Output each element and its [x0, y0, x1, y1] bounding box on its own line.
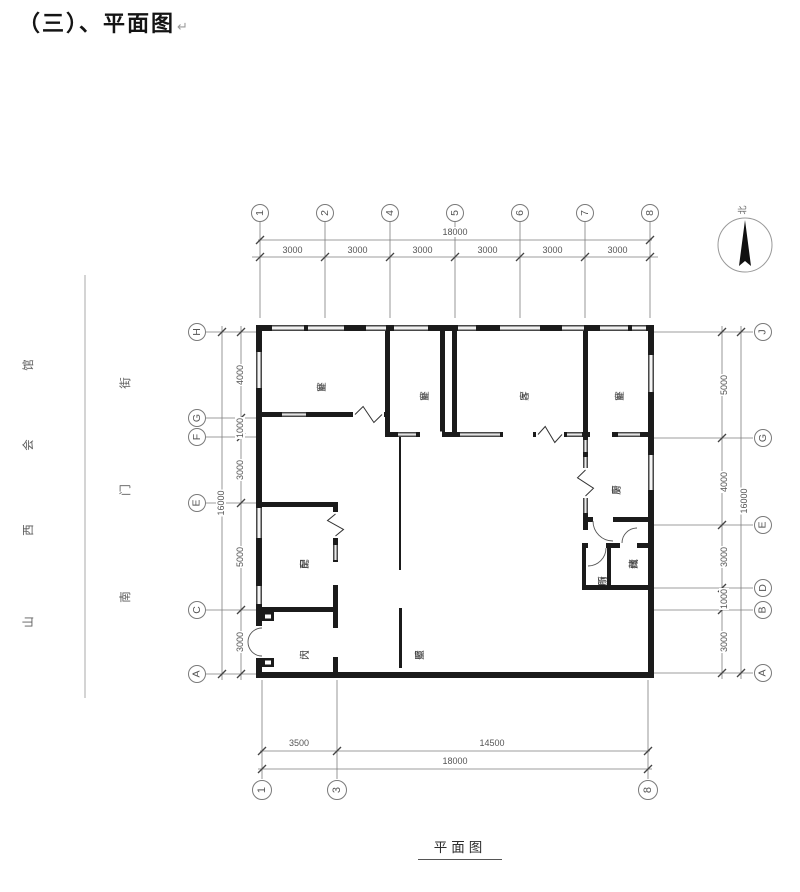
room-label-char: 壁 [412, 650, 426, 660]
grid-bubble-bottom-3-label: 3 [331, 787, 343, 793]
room-label-char: 房 [297, 559, 311, 569]
room-label-char: 室 [612, 391, 626, 401]
boundary-label-inner-char: 南 [117, 591, 133, 603]
grid-bubble-right-J-label: J [757, 329, 769, 334]
toilet-door-arc [588, 548, 606, 566]
grid-bubble-right-J: J [754, 323, 772, 341]
dim-left-segment: 5000 [235, 545, 245, 567]
dim-left-segment: 1000 [235, 416, 245, 438]
door-opening [588, 543, 606, 549]
partition-wall [440, 331, 445, 437]
gate-pier [265, 661, 271, 665]
grid-bubble-right-B: B [754, 601, 772, 619]
boundary-label-inner-char: 街 [117, 377, 133, 389]
grid-bubble-bottom-1: 1 [252, 780, 272, 800]
grid-bubble-top-8: 8 [641, 204, 659, 222]
gate-vestibule-east-wall [333, 657, 338, 673]
floor-plan-page: （三）、平面图↵ 1245678HGFECAJGEDBA138180003000… [0, 0, 800, 892]
grid-bubble-top-4-label: 4 [384, 210, 396, 216]
kitchen-wall-stub [583, 517, 588, 530]
side-room-south-wall [256, 607, 338, 612]
grid-bubble-top-6: 6 [511, 204, 529, 222]
grid-bubble-right-E: E [754, 516, 772, 534]
grid-bubble-left-G: G [188, 409, 206, 427]
dim-left-segment: 3000 [235, 459, 245, 481]
dim-right-overall: 16000 [739, 487, 749, 514]
partition-wall [385, 331, 390, 437]
grid-bubble-left-H: H [188, 323, 206, 341]
door-opening [420, 432, 442, 439]
grid-bubble-left-H-label: H [191, 328, 203, 336]
dim-top-segment: 3000 [281, 245, 303, 255]
boundary-label-outer-char: 山 [20, 616, 36, 628]
door-opening [593, 517, 613, 523]
dim-right-segment: 4000 [719, 470, 729, 492]
room-label-char: 厅 [517, 391, 531, 401]
dim-left-segment: 4000 [235, 364, 245, 386]
grid-bubble-top-1-label: 1 [254, 210, 266, 216]
room-label-char: 门 [297, 650, 311, 660]
grid-bubble-left-F-label: F [191, 434, 203, 440]
dim-left-segment: 3000 [235, 631, 245, 653]
compass-north-needle [739, 220, 751, 266]
toilet-storage-south-wall [582, 585, 648, 590]
partition-wall [583, 331, 588, 437]
dim-bottom-segment: 3500 [288, 738, 310, 748]
grid-bubble-left-E-label: E [191, 499, 203, 506]
grid-bubble-left-G-label: G [191, 414, 203, 422]
dim-right-segment: 3000 [719, 630, 729, 652]
dim-right-segment: 1000 [719, 588, 729, 610]
grid-bubble-right-G: G [754, 429, 772, 447]
grid-bubble-top-5: 5 [446, 204, 464, 222]
grid-bubble-left-C: C [188, 601, 206, 619]
dim-top-segment: 3000 [476, 245, 498, 255]
grid-bubble-top-6-label: 6 [514, 210, 526, 216]
grid-bubble-right-B-label: B [757, 606, 769, 613]
grid-bubble-right-A-label: A [757, 669, 769, 676]
dim-top-segment: 3000 [411, 245, 433, 255]
dim-bottom-overall: 18000 [441, 756, 468, 766]
courtyard-screen-wall [399, 437, 401, 570]
drawing-caption: 平面图 [418, 836, 502, 860]
door-opening [590, 432, 612, 439]
grid-bubble-bottom-1-label: 1 [256, 787, 268, 793]
grid-bubble-bottom-3: 3 [327, 780, 347, 800]
screen-wall-zhaobi [399, 608, 402, 668]
grid-bubble-left-E: E [188, 494, 206, 512]
dim-top-segment: 3000 [541, 245, 563, 255]
gate-vestibule-east-wall [333, 612, 338, 628]
grid-bubble-top-2-label: 2 [319, 210, 331, 216]
grid-bubble-top-7: 7 [576, 204, 594, 222]
grid-bubble-right-G-label: G [757, 434, 769, 442]
grid-bubble-top-4: 4 [381, 204, 399, 222]
room-label-char: 房 [609, 485, 623, 495]
grid-bubble-top-5-label: 5 [449, 210, 461, 216]
floor-plan-drawing [0, 0, 800, 892]
room-label-char: 所 [595, 576, 609, 586]
boundary-label-outer-char: 馆 [20, 359, 36, 371]
dim-left-overall: 16000 [216, 489, 226, 516]
dim-top-segment: 3000 [606, 245, 628, 255]
door-opening [620, 543, 637, 549]
grid-bubble-right-A: A [754, 664, 772, 682]
partition-wall [452, 331, 457, 437]
door-opening [256, 626, 264, 658]
toilet-west-wall [582, 543, 586, 590]
grid-bubble-bottom-8-label: 8 [642, 787, 654, 793]
door-opening [333, 562, 339, 585]
side-room-north-wall [256, 502, 338, 507]
grid-bubble-left-A: A [188, 665, 206, 683]
grid-bubble-top-2: 2 [316, 204, 334, 222]
kitchen-door-arc [593, 521, 613, 541]
storage-door-arc [622, 528, 637, 543]
dim-bottom-segment: 14500 [478, 738, 505, 748]
compass-north-label: 北 [736, 205, 749, 214]
grid-bubble-left-F: F [188, 428, 206, 446]
grid-bubble-top-1: 1 [251, 204, 269, 222]
grid-bubble-bottom-8: 8 [638, 780, 658, 800]
grid-bubble-right-D-label: D [757, 584, 769, 592]
boundary-label-outer-char: 西 [20, 524, 36, 536]
room-label-char: 藏 [626, 559, 640, 569]
grid-bubble-right-D: D [754, 579, 772, 597]
grid-bubble-left-A-label: A [191, 670, 203, 677]
door-opening [503, 432, 533, 439]
grid-bubble-right-E-label: E [757, 521, 769, 528]
boundary-label-inner-char: 门 [117, 484, 133, 496]
dim-right-segment: 3000 [719, 545, 729, 567]
grid-bubble-left-C-label: C [191, 606, 203, 614]
gate-pier [265, 615, 271, 619]
room-label-char: 室 [314, 382, 328, 392]
dim-top-segment: 3000 [346, 245, 368, 255]
dim-top-overall: 18000 [441, 227, 468, 237]
grid-bubble-top-8-label: 8 [644, 210, 656, 216]
south-outer-wall [256, 672, 654, 678]
room-label-char: 室 [417, 391, 431, 401]
grid-bubble-top-7-label: 7 [579, 210, 591, 216]
dim-right-segment: 5000 [719, 374, 729, 396]
boundary-label-outer-char: 会 [20, 439, 36, 451]
